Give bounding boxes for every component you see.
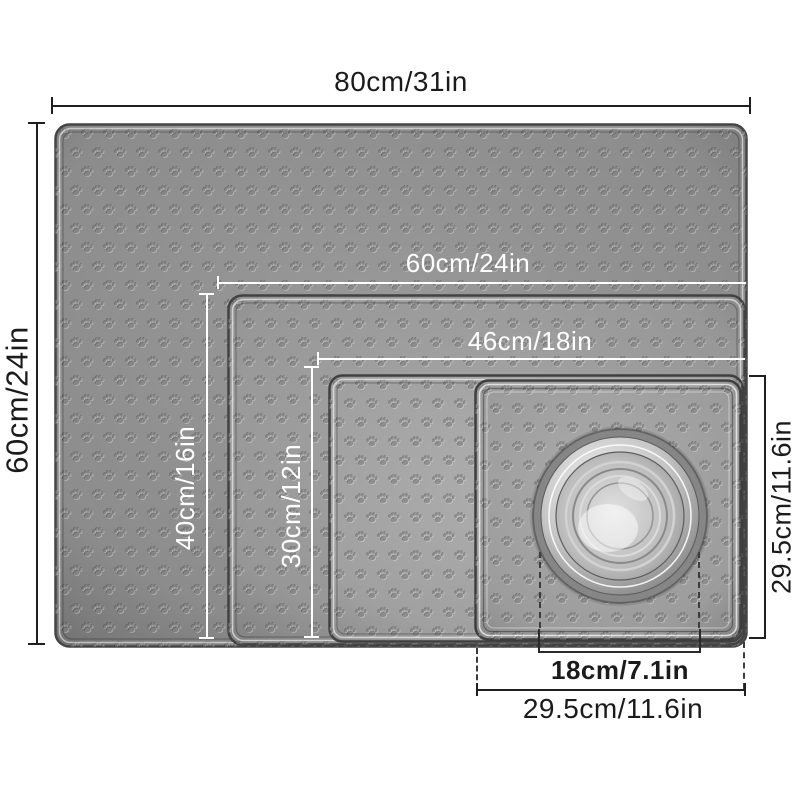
dimension-label-mat60-height: 40cm/16in	[172, 426, 198, 550]
tick	[199, 293, 214, 295]
tick	[699, 629, 701, 653]
line	[36, 123, 38, 645]
tick	[744, 683, 746, 696]
line	[52, 105, 750, 107]
tick	[304, 366, 319, 368]
line	[477, 689, 745, 691]
guide-dash	[539, 552, 541, 628]
water-highlight	[578, 504, 638, 552]
tick	[749, 97, 751, 114]
dimension-label-outer-height: 60cm/24in	[2, 326, 33, 474]
tick	[217, 276, 219, 289]
tick	[749, 375, 766, 377]
dimension-label-bowl-diameter: 18cm/7.1in	[551, 657, 689, 683]
tick	[317, 352, 319, 365]
dimension-label-mat46-width: 46cm/18in	[468, 328, 592, 354]
line	[218, 282, 746, 284]
tick	[199, 637, 214, 639]
guide-dash	[743, 642, 745, 689]
dimension-label-outer-width: 80cm/31in	[334, 68, 468, 96]
dimension-label-mat29-height: 29.5cm/11.6in	[769, 420, 796, 594]
tick	[28, 122, 45, 124]
tick	[28, 643, 45, 645]
tick	[749, 637, 766, 639]
tick	[304, 636, 319, 638]
steel-bowl	[520, 416, 720, 616]
line	[539, 651, 701, 653]
tick	[476, 683, 478, 696]
dimension-label-mat29-width: 29.5cm/11.6in	[523, 695, 703, 723]
size-diagram: 80cm/31in 60cm/24in 60cm/24in 46cm/18in …	[0, 0, 800, 800]
line	[311, 367, 313, 638]
guide-dash	[698, 552, 700, 628]
dimension-label-mat46-height: 30cm/12in	[278, 444, 304, 568]
tick	[51, 97, 53, 114]
dimension-label-mat60-width: 60cm/24in	[406, 250, 530, 276]
line	[206, 294, 208, 639]
tick	[538, 629, 540, 653]
line	[318, 358, 745, 360]
